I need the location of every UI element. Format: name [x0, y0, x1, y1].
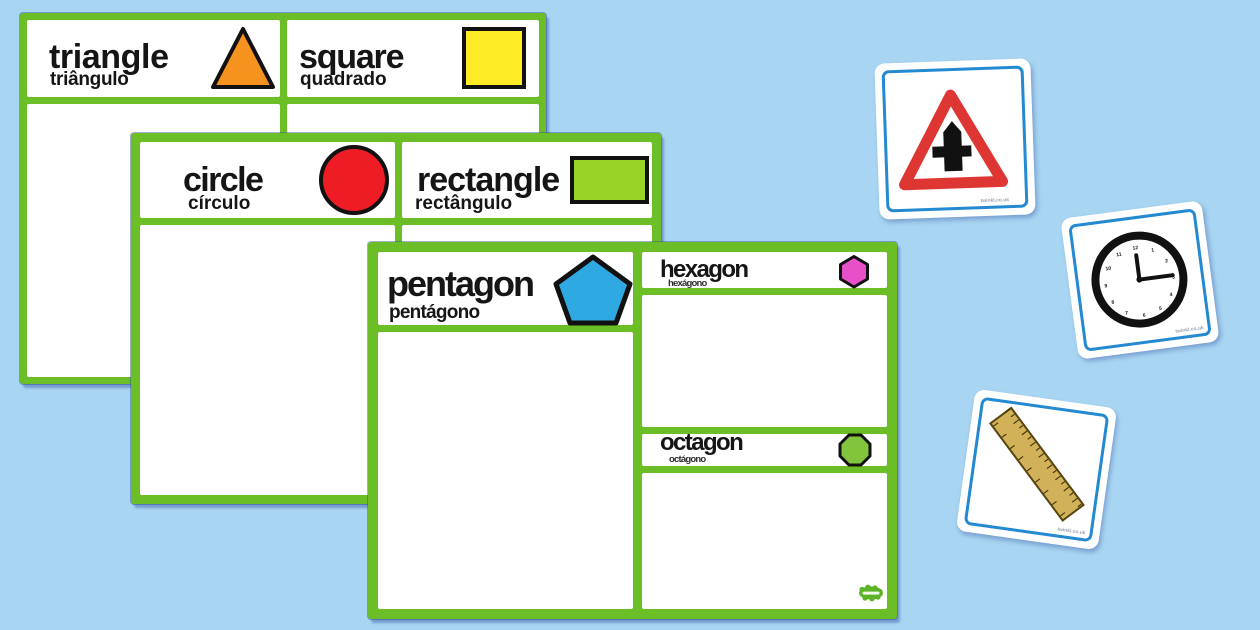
svg-text:10: 10 [1105, 266, 1112, 273]
svg-text:12: 12 [1132, 245, 1139, 252]
svg-text:11: 11 [1116, 252, 1122, 259]
